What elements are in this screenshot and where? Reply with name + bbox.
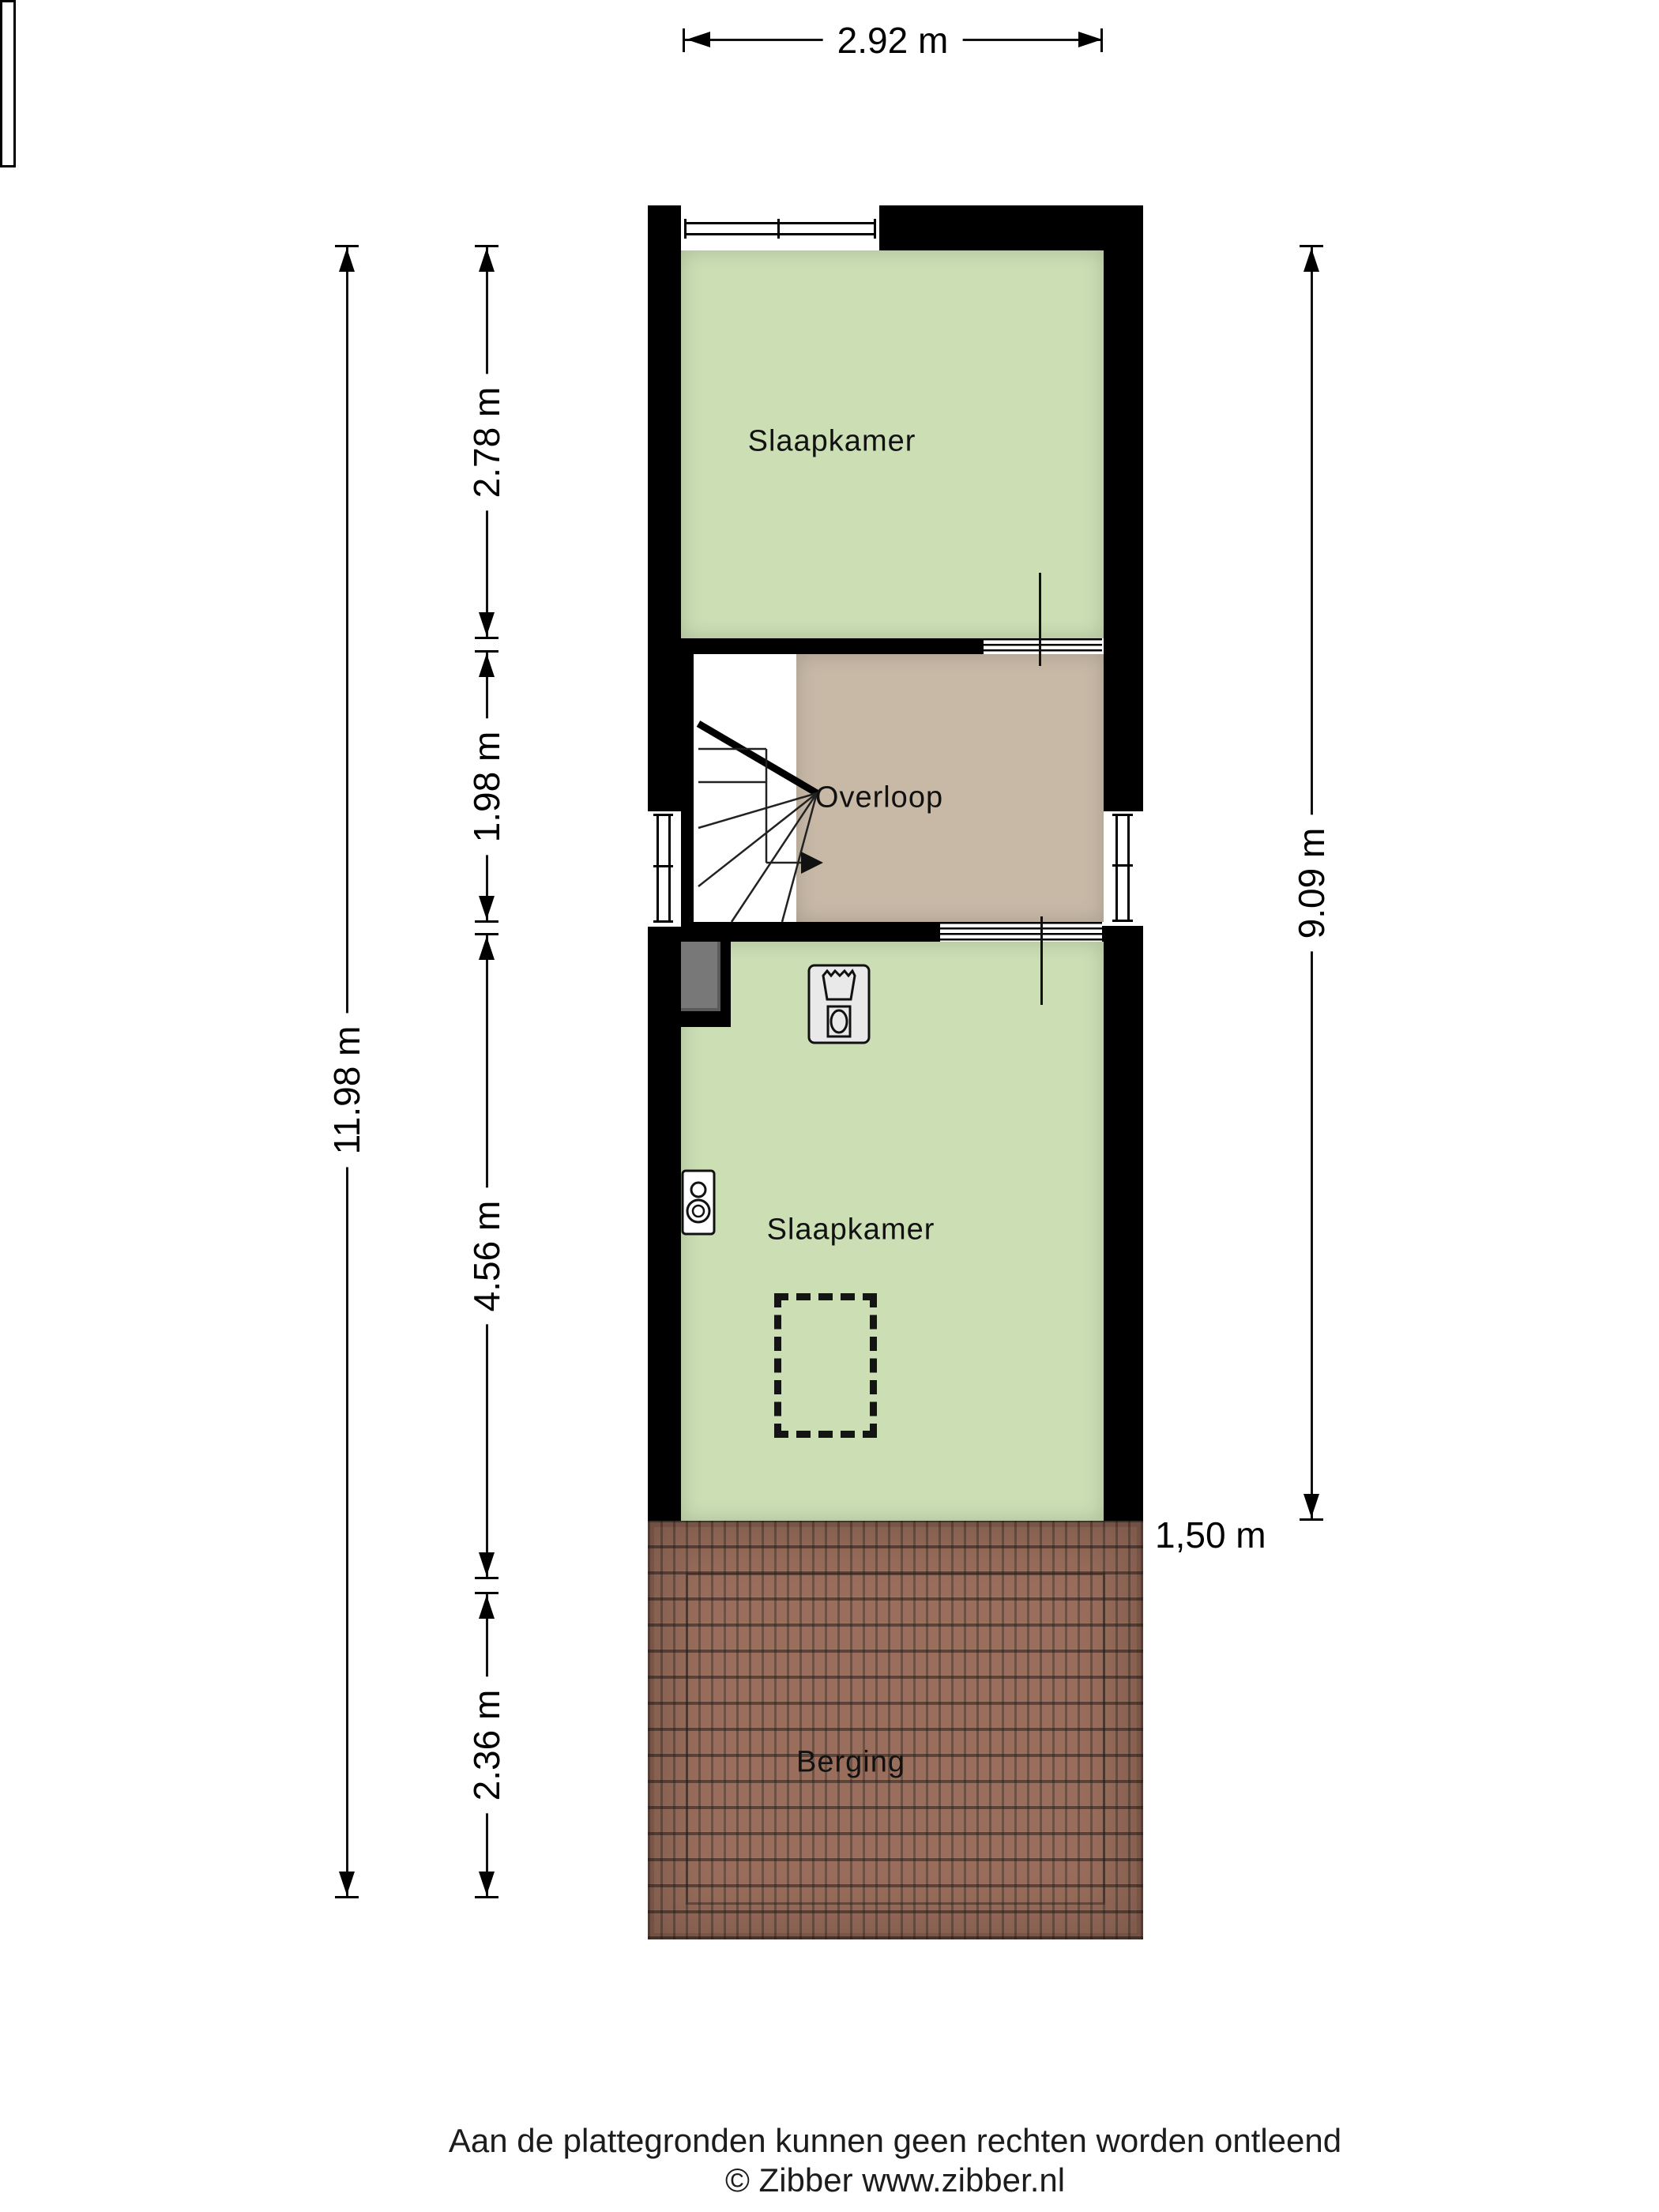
wall-left-upper xyxy=(648,205,681,654)
direction-arrow-icon xyxy=(801,852,823,874)
dimension-height-right: 9.09 m xyxy=(1287,815,1336,952)
door-bedroom-bottom xyxy=(940,922,1102,942)
dimension-roof-edge: 1,50 m xyxy=(1155,1514,1266,1556)
dimension-tick xyxy=(475,920,498,923)
arrow-up-icon xyxy=(479,248,495,272)
arrow-up-icon xyxy=(479,1595,495,1619)
door-swing-line xyxy=(1039,573,1041,666)
roof-ridge-outline xyxy=(686,1573,1105,1905)
dimension-tick xyxy=(475,933,498,935)
stairs-winder-icon xyxy=(679,648,829,928)
wall-left-lower xyxy=(648,942,681,1521)
arrow-down-icon xyxy=(479,1552,495,1576)
dimension-tick xyxy=(475,1592,498,1594)
arrow-up-icon xyxy=(479,936,495,960)
stair-partition-wall xyxy=(0,0,16,167)
arrow-up-icon xyxy=(479,653,495,677)
dimension-tick xyxy=(475,1896,498,1898)
room-label-bedroom-bottom: Slaapkamer xyxy=(767,1213,935,1247)
footer-credit: © Zibber www.zibber.nl xyxy=(725,2161,1065,2199)
dimension-height-total: 11.98 m xyxy=(322,1014,371,1168)
arrow-down-icon xyxy=(1303,1494,1319,1518)
dimension-segment-2: 1.98 m xyxy=(462,719,511,856)
door-swing-line xyxy=(1040,916,1043,1005)
floorplan-canvas: 2.92 m xyxy=(0,0,1659,2212)
chimney-duct xyxy=(681,942,720,1011)
dimension-segment-3: 4.56 m xyxy=(462,1188,511,1325)
arrow-down-icon xyxy=(479,612,495,636)
wall-corner-right xyxy=(1102,926,1143,964)
arrow-up-icon xyxy=(1303,248,1319,272)
arrow-left-icon xyxy=(687,32,710,47)
arrow-down-icon xyxy=(479,1872,495,1895)
roof-berging xyxy=(648,1521,1143,1939)
room-label-berging: Berging xyxy=(796,1746,905,1780)
arrow-down-icon xyxy=(339,1872,355,1895)
dimension-tick xyxy=(335,1896,359,1898)
room-label-landing: Overloop xyxy=(815,781,943,815)
washing-machine-icon xyxy=(807,964,871,1044)
arrow-up-icon xyxy=(339,248,355,272)
window-right-icon xyxy=(1104,811,1143,926)
dimension-tick xyxy=(335,245,359,247)
dimension-tick xyxy=(1300,1518,1323,1521)
dimension-width-top: 2.92 m xyxy=(823,17,963,63)
room-label-bedroom-top: Slaapkamer xyxy=(748,425,916,459)
window-left-icon xyxy=(648,811,681,927)
dimension-tick xyxy=(475,1577,498,1579)
arrow-right-icon xyxy=(1078,32,1102,47)
boiler-icon xyxy=(681,1169,716,1236)
dimension-segment-1: 2.78 m xyxy=(462,374,511,511)
dimension-tick xyxy=(475,637,498,639)
dimension-segment-4: 2.36 m xyxy=(462,1677,511,1814)
dimension-tick xyxy=(1300,245,1323,247)
dimension-tick xyxy=(475,650,498,653)
footer-disclaimer: Aan de plattegronden kunnen geen rechten… xyxy=(449,2122,1341,2160)
arrow-down-icon xyxy=(479,896,495,920)
roof-window-icon xyxy=(774,1293,877,1438)
door-bedroom-top xyxy=(984,638,1102,654)
dimension-tick xyxy=(683,28,685,52)
window-top-icon xyxy=(681,205,879,250)
dimension-tick xyxy=(475,245,498,247)
